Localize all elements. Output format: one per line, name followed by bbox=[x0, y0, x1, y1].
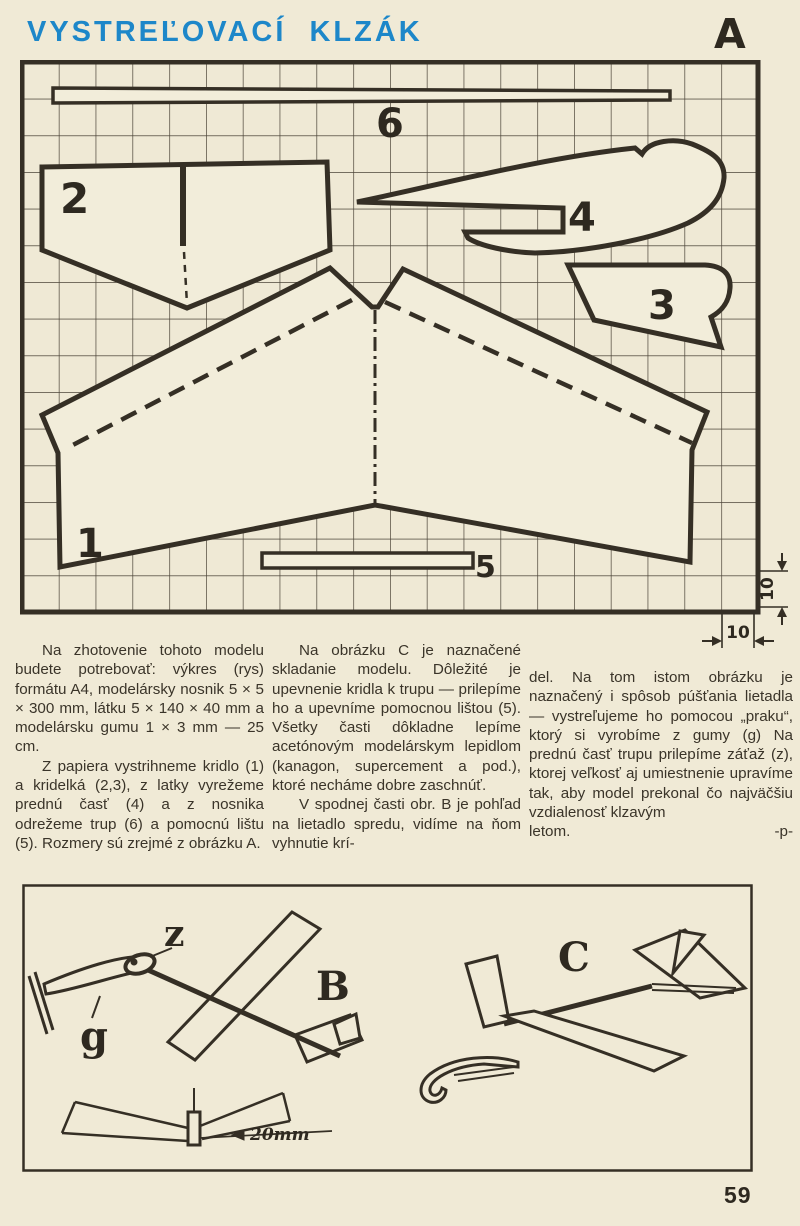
dim-right-value: 10 bbox=[758, 577, 778, 601]
part-5-aux-strip bbox=[262, 553, 473, 568]
article-column-2: Na obrázku C je naznačené skladanie mode… bbox=[272, 641, 521, 853]
paragraph: V spodnej časti obr. B je pohľad na liet… bbox=[272, 795, 521, 853]
paragraph: Na zhotovenie tohoto modelu budete potre… bbox=[15, 641, 264, 757]
article-column-3: del. Na tom istom obrázku je naznačený i… bbox=[529, 641, 793, 853]
label-c: C bbox=[558, 934, 590, 981]
part-label-5: 5 bbox=[475, 550, 496, 585]
figure-b-c: g z B 20mm C bbox=[22, 884, 753, 1172]
part-label-4: 4 bbox=[568, 195, 596, 241]
paragraph: Na obrázku C je naznačené skladanie mode… bbox=[272, 641, 521, 795]
label-b: B bbox=[316, 963, 350, 1010]
part-label-3: 3 bbox=[648, 283, 676, 329]
figure-a-label: A bbox=[714, 10, 746, 58]
part-label-2: 2 bbox=[60, 174, 89, 223]
page-title: VYSTREĽOVACÍ KLZÁK bbox=[27, 16, 423, 49]
page-number: 59 bbox=[724, 1182, 752, 1209]
part-6-fuselage-strip bbox=[53, 88, 670, 103]
part-label-6: 6 bbox=[376, 101, 404, 147]
label-g: g bbox=[80, 1013, 108, 1060]
article-text: Na zhotovenie tohoto modelu budete potre… bbox=[15, 641, 793, 853]
label-z: z bbox=[164, 913, 184, 955]
part-label-1: 1 bbox=[76, 521, 104, 567]
paragraph: Z papiera vystrihneme kridlo (1) a kride… bbox=[15, 757, 264, 853]
article-column-1: Na zhotovenie tohoto modelu budete potre… bbox=[15, 641, 264, 853]
dimension-20mm: 20mm bbox=[249, 1125, 310, 1145]
dimension-right: 10 bbox=[758, 553, 788, 625]
paragraph: del. Na tom istom obrázku je naznačený i… bbox=[529, 668, 793, 822]
dim-bottom-value: 10 bbox=[726, 623, 750, 643]
plan-figure-a: 1 2 3 4 5 6 10 10 bbox=[20, 60, 792, 652]
figure-border bbox=[24, 886, 752, 1171]
author-signature: -p- bbox=[774, 822, 793, 841]
paragraph-end: letom. bbox=[529, 822, 570, 841]
